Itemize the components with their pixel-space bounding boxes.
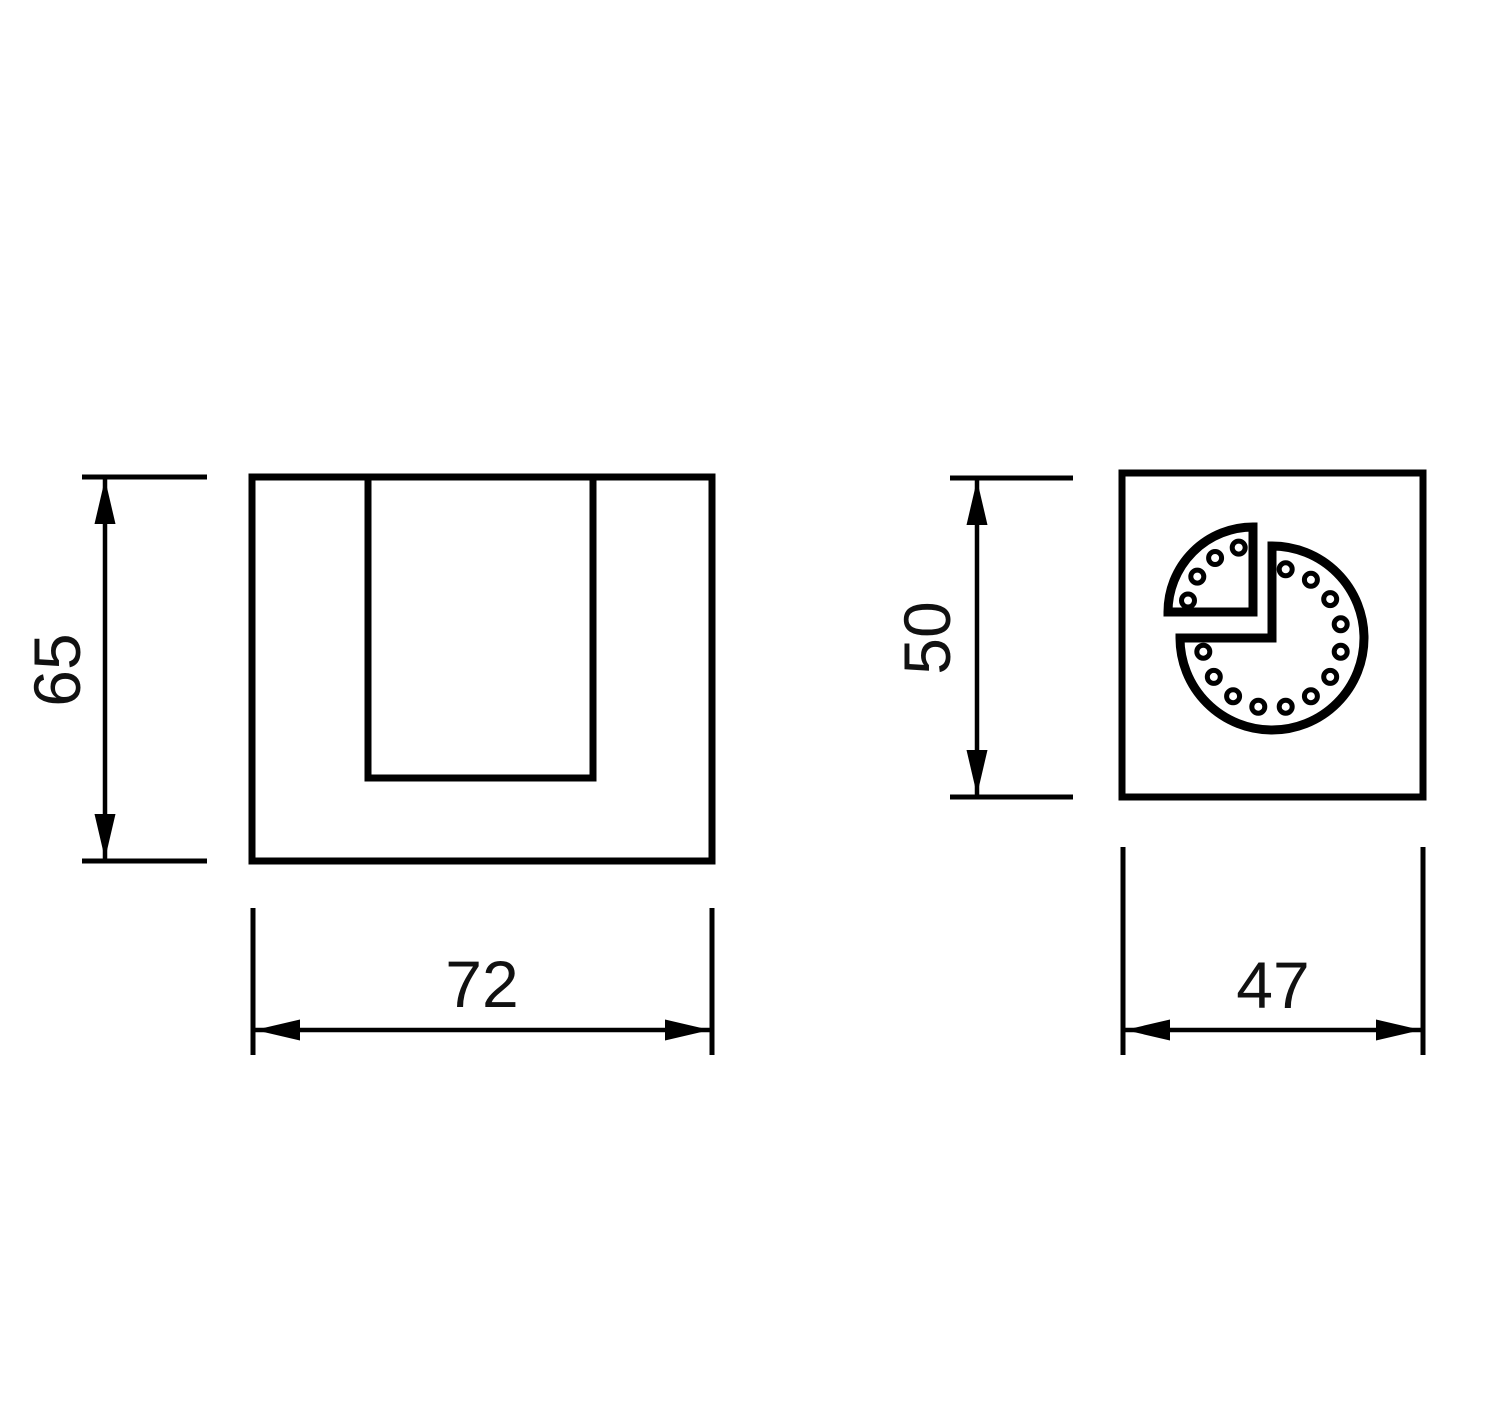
height-dimension-50: 50 [890,478,1073,797]
arrow-left-icon [1125,1020,1170,1041]
disc-hole [1324,670,1337,683]
side-view [1122,473,1423,797]
width-dimension-47: 47 [1123,847,1423,1055]
height-dimension-65: 65 [20,477,207,861]
arrow-down-icon [95,814,116,859]
u-slot-cutout [368,477,593,778]
disc-hole [1279,563,1292,576]
disc-hole [1252,700,1265,713]
disc-hole [1197,645,1210,658]
disc-hole [1182,594,1195,607]
front-view [252,477,712,861]
disc-hole [1207,670,1220,683]
disc-hole [1191,570,1204,583]
arrow-up-icon [967,480,988,525]
perforated-disc-icon [1168,527,1364,730]
arrow-left-icon [255,1020,300,1041]
disc-hole [1304,690,1317,703]
technical-drawing: 65 72 [0,0,1500,1427]
disc-hole [1334,618,1347,631]
arrow-down-icon [967,750,988,795]
technical-drawing-page: 65 72 [0,0,1500,1427]
arrow-right-icon [665,1020,710,1041]
disc-hole [1324,593,1337,606]
front-view-outline [252,477,712,861]
disc-hole [1209,552,1222,565]
width-dimension-label: 72 [445,947,518,1021]
disc-hole [1304,573,1317,586]
disc-hole [1279,700,1292,713]
height-dimension-label: 65 [20,633,94,706]
width-dimension-72: 72 [253,908,712,1055]
arrow-right-icon [1376,1020,1421,1041]
disc-hole [1334,645,1347,658]
disc-hole [1232,541,1245,554]
disc-hole [1227,690,1240,703]
width-dimension-label: 47 [1236,948,1309,1022]
height-dimension-label: 50 [890,601,964,674]
arrow-up-icon [95,479,116,524]
